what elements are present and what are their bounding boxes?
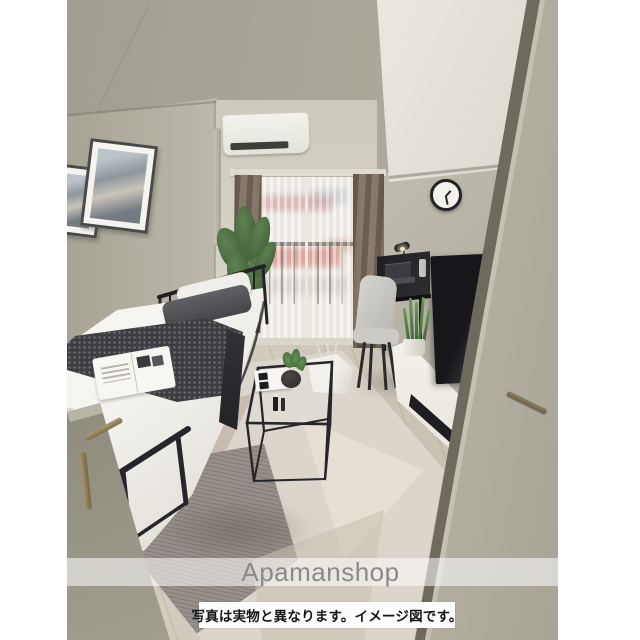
- watermark-text: Apamanshop: [225, 558, 399, 586]
- apartment-photo: Apamanshop 写真は実物と異なります。イメージ図です。: [67, 0, 558, 640]
- table-bottle: [281, 398, 285, 411]
- listing-photo-page: Apamanshop 写真は実物と異なります。イメージ図です。: [0, 0, 640, 640]
- watermark-band: Apamanshop: [67, 558, 558, 586]
- disclaimer-box: 写真は実物と異なります。イメージ図です。: [199, 602, 455, 628]
- table-bottle: [273, 394, 278, 411]
- book-cover-glyph: [259, 381, 269, 389]
- table-plant-pot: [281, 370, 301, 388]
- bottle-cap: [273, 394, 278, 397]
- disclaimer-text: 写真は実物と異なります。イメージ図です。: [191, 605, 462, 625]
- book-cover-glyph: [258, 373, 268, 381]
